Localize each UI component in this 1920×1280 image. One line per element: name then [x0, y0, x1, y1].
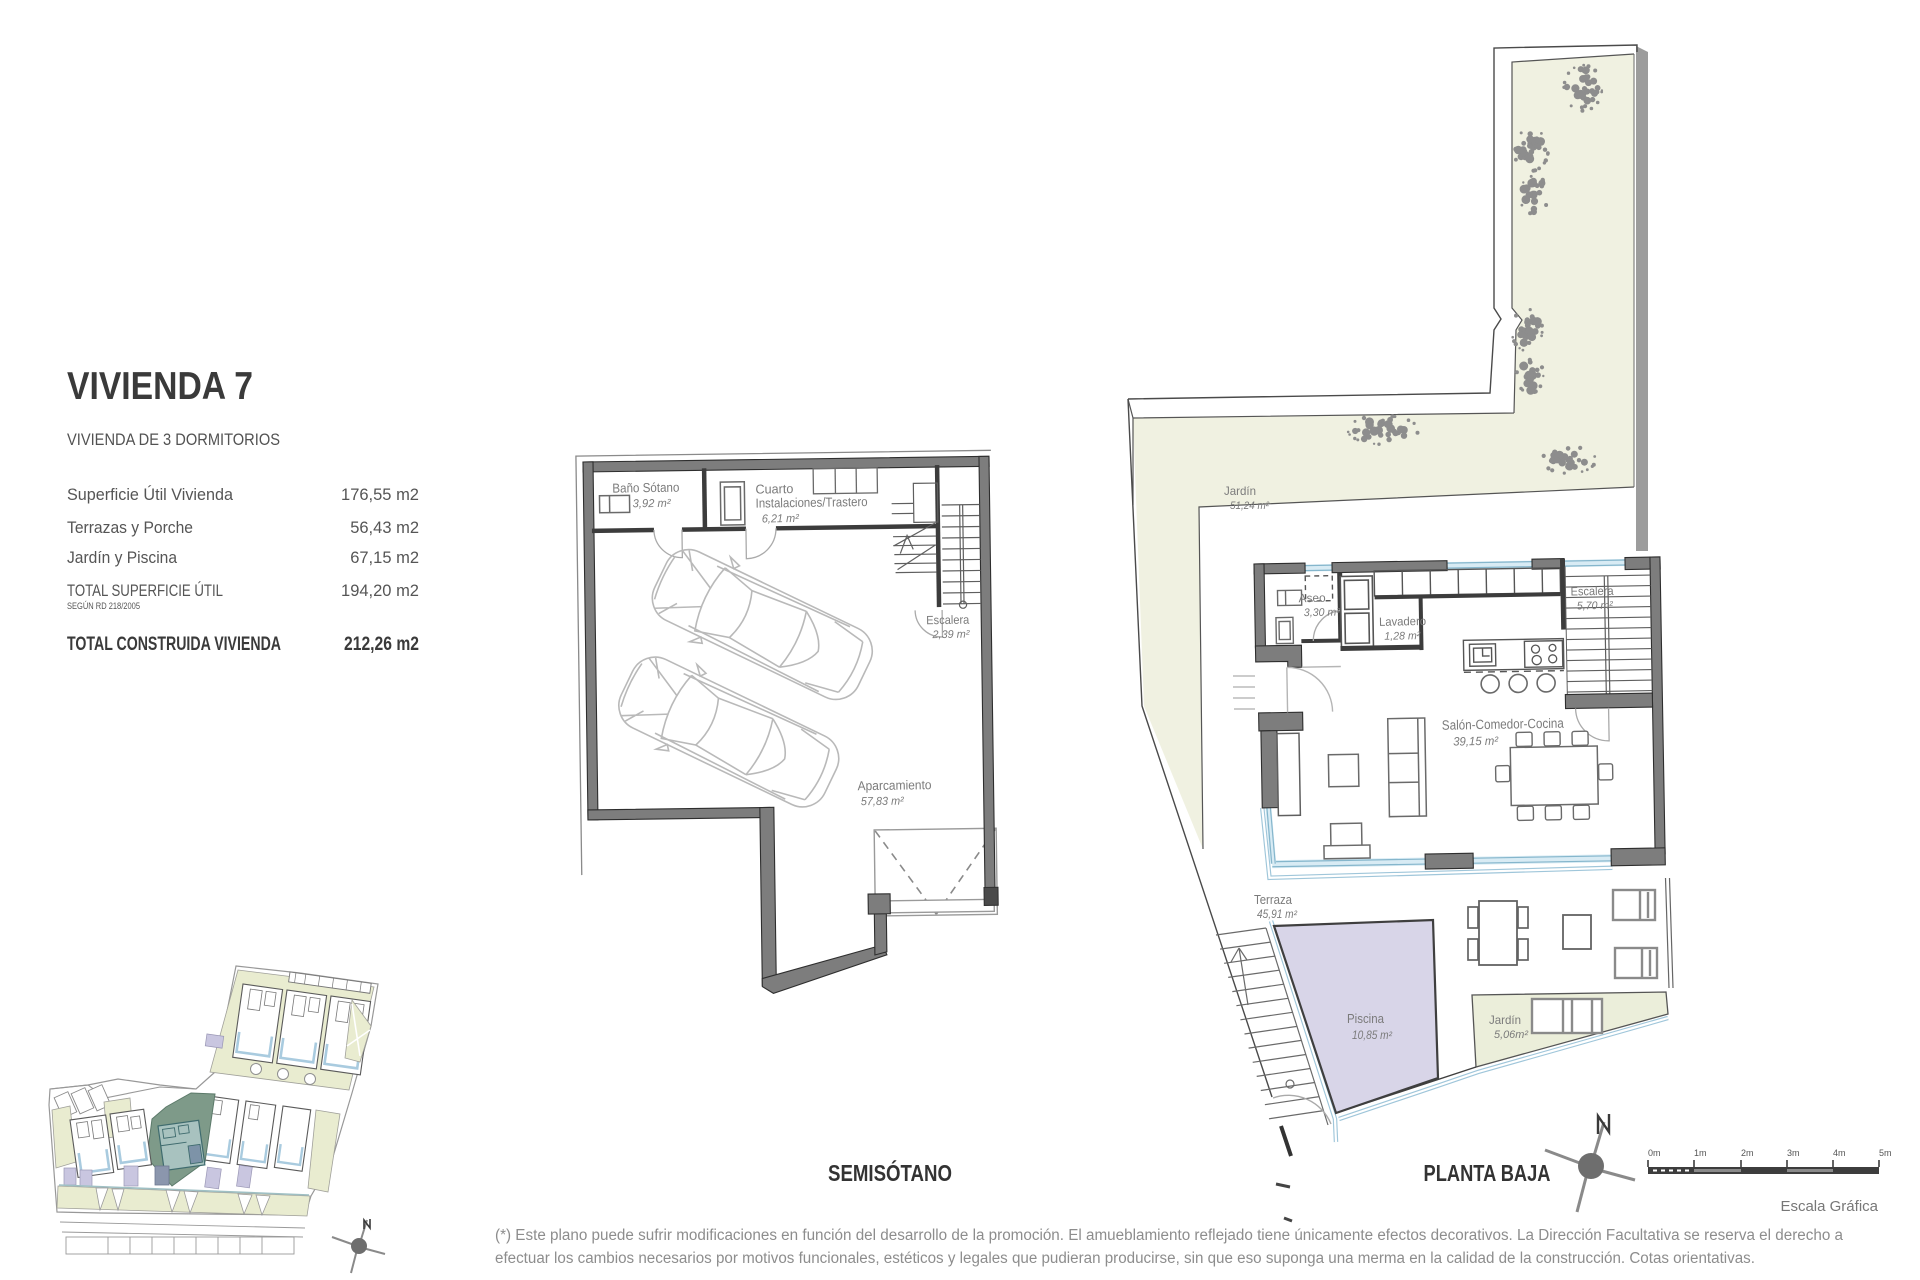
- svg-text:Escala Gráfica: Escala Gráfica: [1780, 1198, 1878, 1215]
- svg-text:3m: 3m: [1787, 1148, 1800, 1158]
- svg-text:Escalera: Escalera: [1570, 584, 1614, 599]
- svg-text:3,30 m²: 3,30 m²: [1304, 607, 1341, 620]
- svg-text:TOTAL SUPERFICIE ÚTIL: TOTAL SUPERFICIE ÚTIL: [67, 581, 223, 600]
- svg-text:6,21 m²: 6,21 m²: [762, 513, 800, 526]
- svg-text:39,15 m²: 39,15 m²: [1453, 734, 1499, 749]
- svg-text:VIVIENDA DE 3 DORMITORIOS: VIVIENDA DE 3 DORMITORIOS: [67, 431, 280, 449]
- svg-text:Lavadero: Lavadero: [1379, 614, 1427, 629]
- svg-text:10,85 m²: 10,85 m²: [1352, 1030, 1393, 1042]
- svg-text:5,70 m²: 5,70 m²: [1577, 600, 1614, 613]
- svg-text:51,24 m²: 51,24 m²: [1230, 500, 1269, 512]
- svg-text:212,26 m2: 212,26 m2: [344, 634, 419, 655]
- svg-text:Jardín: Jardín: [1224, 484, 1256, 498]
- svg-text:5m: 5m: [1879, 1148, 1892, 1158]
- svg-text:(*) Este plano puede sufrir mo: (*) Este plano puede sufrir modificacion…: [495, 1227, 1843, 1244]
- svg-text:Baño Sótano: Baño Sótano: [612, 480, 679, 496]
- svg-text:TOTAL CONSTRUIDA VIVIENDA: TOTAL CONSTRUIDA VIVIENDA: [67, 634, 281, 655]
- svg-text:SEGÚN RD 218/2005: SEGÚN RD 218/2005: [67, 601, 140, 611]
- svg-text:0m: 0m: [1648, 1148, 1661, 1158]
- svg-text:PLANTA BAJA: PLANTA BAJA: [1424, 1160, 1551, 1186]
- svg-text:Terrazas y Porche: Terrazas y Porche: [67, 519, 193, 537]
- svg-text:Jardín: Jardín: [1489, 1013, 1521, 1027]
- svg-text:Instalaciones/Trastero: Instalaciones/Trastero: [755, 494, 867, 511]
- svg-text:SEMISÓTANO: SEMISÓTANO: [828, 1159, 952, 1186]
- svg-text:efectuar los cambios necesario: efectuar los cambios necesarios por moti…: [495, 1250, 1755, 1267]
- svg-text:2m: 2m: [1741, 1148, 1754, 1158]
- svg-text:Terraza: Terraza: [1254, 893, 1292, 907]
- svg-text:57,83 m²: 57,83 m²: [861, 796, 905, 809]
- svg-text:194,20 m2: 194,20 m2: [341, 582, 419, 600]
- svg-text:Piscina: Piscina: [1347, 1012, 1384, 1026]
- svg-text:1m: 1m: [1694, 1148, 1707, 1158]
- svg-text:2,39 m²: 2,39 m²: [931, 629, 969, 642]
- svg-text:45,91 m²: 45,91 m²: [1257, 909, 1298, 921]
- svg-text:4m: 4m: [1833, 1148, 1846, 1158]
- svg-text:67,15 m2: 67,15 m2: [350, 549, 419, 567]
- svg-text:5,06m²: 5,06m²: [1494, 1029, 1528, 1041]
- svg-text:Superficie Útil Vivienda: Superficie Útil Vivienda: [67, 485, 234, 504]
- svg-text:176,55 m2: 176,55 m2: [341, 486, 419, 504]
- svg-text:1,28 m²: 1,28 m²: [1384, 630, 1421, 643]
- svg-text:Escalera: Escalera: [926, 613, 969, 628]
- svg-text:3,92 m²: 3,92 m²: [633, 498, 672, 511]
- svg-text:Jardín y Piscina: Jardín y Piscina: [67, 549, 178, 567]
- svg-text:VIVIENDA 7: VIVIENDA 7: [67, 365, 253, 408]
- svg-text:56,43 m2: 56,43 m2: [350, 519, 419, 537]
- svg-text:Salón-Comedor-Cocina: Salón-Comedor-Cocina: [1442, 716, 1565, 733]
- svg-text:Aseo: Aseo: [1298, 591, 1326, 605]
- svg-text:Aparcamiento: Aparcamiento: [857, 777, 931, 793]
